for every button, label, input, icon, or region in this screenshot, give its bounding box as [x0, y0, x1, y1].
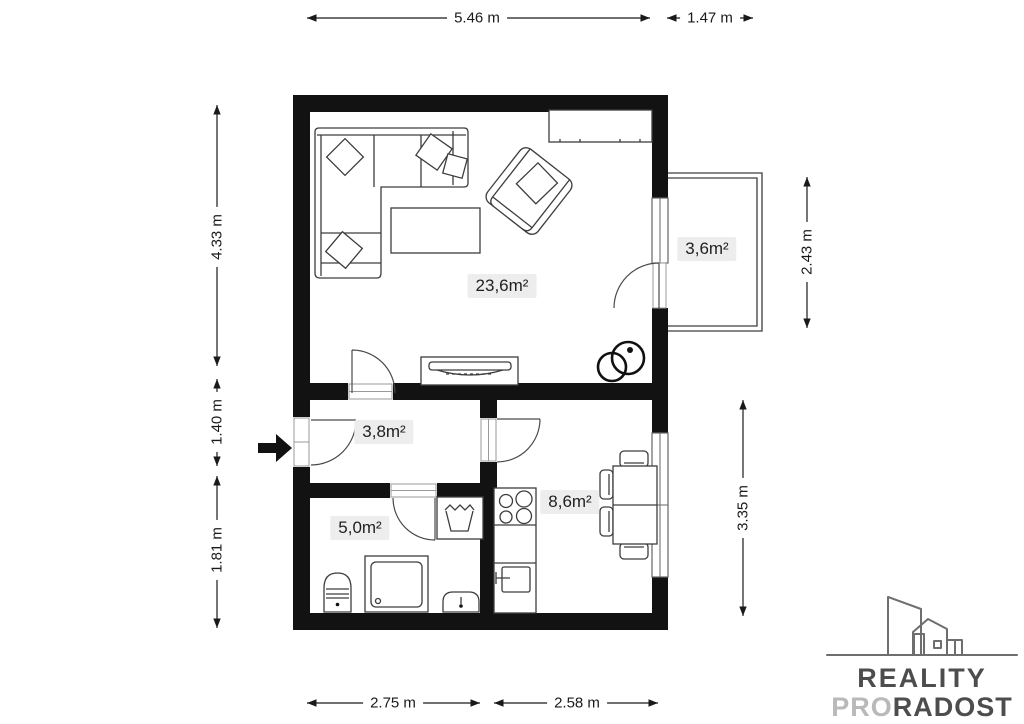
dimension-label-left-2: 1.40 m	[209, 392, 226, 452]
entrance-arrow	[258, 434, 292, 462]
bathroom-sink	[443, 592, 479, 612]
logo-buildings-icon	[822, 586, 1022, 658]
dimension-label-top-1: 5.46 m	[447, 10, 507, 27]
balcony-door	[614, 263, 659, 308]
room-label-bathroom: 5,0m²	[330, 516, 389, 540]
bathroom-door	[393, 498, 435, 540]
logo-text-proradost: PRORADOST	[822, 693, 1022, 722]
living-room-window	[652, 198, 668, 263]
washing-machine	[437, 497, 483, 539]
toilet	[324, 573, 351, 612]
company-logo: REALITY PRORADOST	[822, 586, 1022, 721]
room-label-kitchen: 8,6m²	[540, 490, 599, 514]
dimension-label-bottom-2: 2.58 m	[547, 695, 607, 712]
dimension-label-left-3: 1.81 m	[209, 520, 226, 580]
dimension-label-left-1: 4.33 m	[209, 207, 226, 267]
logo-text-pro: PRO	[831, 692, 893, 722]
coffee-table	[391, 208, 480, 253]
logo-text-radost: RADOST	[893, 692, 1013, 722]
dimension-label-top-2: 1.47 m	[680, 10, 740, 27]
room-label-balcony: 3,6m²	[677, 237, 736, 261]
logo-text-reality: REALITY	[822, 664, 1022, 693]
sideboard	[549, 110, 652, 142]
floorplan-canvas: 5.46 m 1.47 m 4.33 m 1.40 m 1.81 m 2.43 …	[0, 0, 1024, 724]
entrance-door	[311, 420, 356, 465]
armchair	[483, 145, 575, 238]
dimension-label-right-1: 2.43 m	[799, 222, 816, 282]
ceiling-lamp	[598, 342, 644, 381]
kitchen-door	[497, 419, 540, 462]
kitchen-counter	[494, 488, 536, 613]
room-label-living-room: 23,6m²	[468, 274, 537, 298]
dimension-label-bottom-1: 2.75 m	[363, 695, 423, 712]
dimension-label-right-2: 3.35 m	[735, 478, 752, 538]
room-label-hallway: 3,8m²	[354, 420, 413, 444]
tv-stand	[421, 357, 518, 385]
sofa	[315, 128, 468, 278]
shower	[365, 556, 428, 612]
dining-table	[600, 451, 657, 559]
